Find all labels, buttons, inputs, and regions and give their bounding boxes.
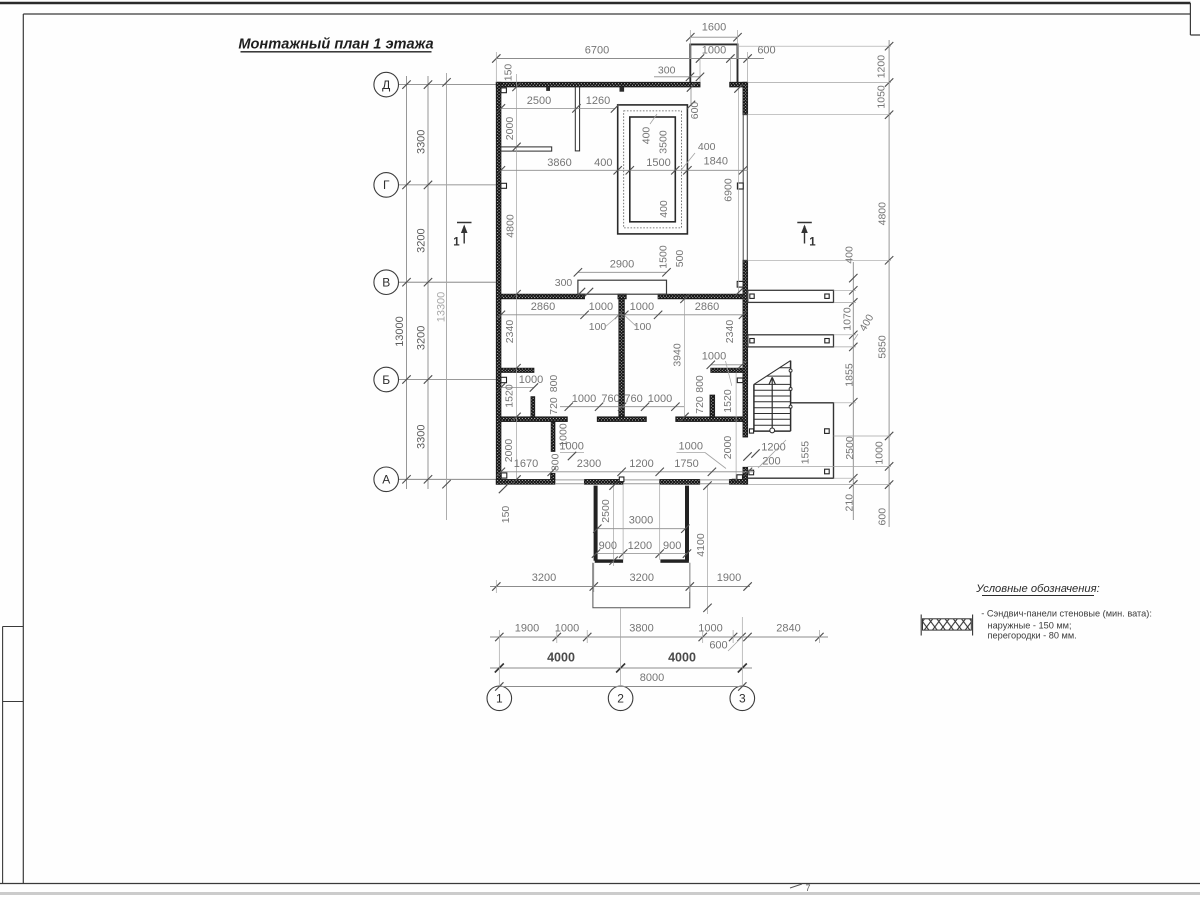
svg-text:2300: 2300 (577, 458, 601, 470)
svg-text:1000: 1000 (679, 441, 703, 453)
svg-text:1200: 1200 (876, 55, 888, 79)
svg-text:3200: 3200 (415, 326, 427, 350)
svg-text:1000: 1000 (519, 374, 543, 386)
svg-text:1200: 1200 (761, 442, 785, 454)
svg-text:2860: 2860 (531, 301, 555, 313)
svg-text:перегородки - 80 мм.: перегородки - 80 мм. (988, 631, 1077, 641)
svg-text:3800: 3800 (629, 623, 653, 635)
svg-text:1900: 1900 (717, 572, 741, 584)
svg-text:150: 150 (500, 506, 512, 524)
svg-text:Г: Г (383, 178, 390, 192)
svg-text:600: 600 (709, 640, 727, 652)
svg-text:1520: 1520 (722, 389, 734, 413)
svg-text:1200: 1200 (628, 540, 652, 552)
svg-text:400: 400 (844, 246, 856, 264)
svg-text:300: 300 (658, 65, 676, 77)
svg-text:600: 600 (877, 508, 889, 526)
svg-text:2860: 2860 (695, 301, 719, 313)
svg-text:3300: 3300 (415, 424, 427, 448)
svg-text:1520: 1520 (503, 384, 515, 408)
svg-text:400: 400 (698, 141, 716, 153)
svg-text:600: 600 (689, 102, 701, 120)
svg-text:3200: 3200 (415, 228, 427, 252)
svg-text:6900: 6900 (722, 178, 734, 202)
svg-text:1: 1 (453, 237, 460, 249)
svg-text:Монтажный план 1 этажа: Монтажный план 1 этажа (238, 37, 433, 53)
svg-text:1900: 1900 (515, 623, 539, 635)
svg-text:1840: 1840 (704, 156, 728, 168)
svg-text:13000: 13000 (394, 316, 406, 347)
svg-text:1855: 1855 (843, 363, 855, 387)
svg-text:1050: 1050 (876, 85, 888, 109)
svg-text:1000: 1000 (555, 623, 579, 635)
svg-text:2000: 2000 (504, 117, 516, 141)
svg-text:300: 300 (555, 277, 573, 289)
svg-text:400: 400 (658, 200, 670, 218)
svg-text:3300: 3300 (415, 130, 427, 154)
svg-text:400: 400 (594, 157, 612, 169)
svg-text:3500: 3500 (657, 130, 669, 154)
svg-text:1000: 1000 (702, 351, 726, 363)
svg-text:В: В (382, 276, 390, 290)
svg-text:3860: 3860 (547, 157, 571, 169)
svg-text:7: 7 (805, 883, 810, 893)
svg-text:1000: 1000 (558, 423, 570, 447)
svg-text:720: 720 (694, 396, 706, 414)
svg-text:6700: 6700 (585, 45, 609, 57)
svg-text:1200: 1200 (629, 458, 653, 470)
svg-text:5850: 5850 (877, 335, 889, 359)
svg-text:1260: 1260 (586, 95, 610, 107)
svg-text:1670: 1670 (514, 458, 538, 470)
svg-text:3200: 3200 (532, 572, 556, 584)
svg-text:Условные обозначения:: Условные обозначения: (975, 583, 1100, 595)
svg-text:1070: 1070 (842, 307, 854, 331)
svg-text:1600: 1600 (702, 22, 726, 34)
svg-text:1555: 1555 (799, 441, 811, 465)
svg-text:4100: 4100 (695, 533, 707, 557)
svg-text:1: 1 (809, 237, 816, 249)
svg-text:2500: 2500 (527, 95, 551, 107)
svg-text:760: 760 (601, 393, 619, 405)
svg-text:2500: 2500 (600, 499, 612, 523)
svg-text:1: 1 (496, 692, 503, 706)
svg-text:210: 210 (843, 494, 855, 512)
svg-text:720: 720 (548, 397, 560, 415)
svg-text:4800: 4800 (505, 214, 517, 238)
svg-text:- Сэндвич-панели стеновые (мин: - Сэндвич-панели стеновые (мин. вата): (981, 609, 1152, 619)
svg-text:8000: 8000 (640, 672, 664, 684)
svg-text:1500: 1500 (646, 157, 670, 169)
svg-text:4000: 4000 (668, 651, 696, 665)
svg-text:3940: 3940 (671, 343, 683, 367)
svg-text:1500: 1500 (657, 245, 669, 269)
svg-text:13300: 13300 (435, 292, 447, 323)
svg-text:А: А (382, 473, 390, 487)
svg-text:2340: 2340 (724, 320, 736, 344)
svg-text:3000: 3000 (629, 515, 653, 527)
svg-text:2000: 2000 (722, 436, 734, 460)
svg-text:1750: 1750 (674, 458, 698, 470)
svg-text:100: 100 (634, 321, 652, 333)
svg-text:760: 760 (624, 393, 642, 405)
svg-text:1000: 1000 (698, 623, 722, 635)
svg-text:900: 900 (599, 540, 617, 552)
svg-text:100: 100 (589, 321, 607, 333)
svg-text:2500: 2500 (844, 436, 856, 460)
svg-text:1000: 1000 (648, 393, 672, 405)
svg-text:3: 3 (739, 692, 746, 706)
svg-text:3200: 3200 (630, 572, 654, 584)
svg-text:150: 150 (503, 64, 515, 82)
svg-text:4000: 4000 (547, 651, 575, 665)
svg-text:900: 900 (663, 540, 681, 552)
svg-text:Д: Д (382, 78, 390, 92)
svg-text:1000: 1000 (630, 301, 654, 313)
svg-text:4800: 4800 (876, 202, 888, 226)
svg-text:400: 400 (640, 127, 652, 145)
svg-text:наружные - 150 мм;: наружные - 150 мм; (988, 620, 1072, 630)
svg-text:2: 2 (617, 692, 624, 706)
svg-text:1000: 1000 (589, 301, 613, 313)
svg-text:1000: 1000 (874, 441, 886, 465)
svg-text:1000: 1000 (702, 45, 726, 57)
svg-text:2340: 2340 (504, 320, 516, 344)
svg-text:2900: 2900 (610, 259, 634, 271)
svg-text:200: 200 (762, 456, 780, 468)
svg-text:500: 500 (674, 250, 686, 268)
svg-text:800: 800 (548, 375, 560, 393)
svg-text:800: 800 (694, 375, 706, 393)
svg-text:2840: 2840 (776, 623, 800, 635)
svg-text:Б: Б (382, 373, 390, 387)
svg-text:1000: 1000 (572, 393, 596, 405)
